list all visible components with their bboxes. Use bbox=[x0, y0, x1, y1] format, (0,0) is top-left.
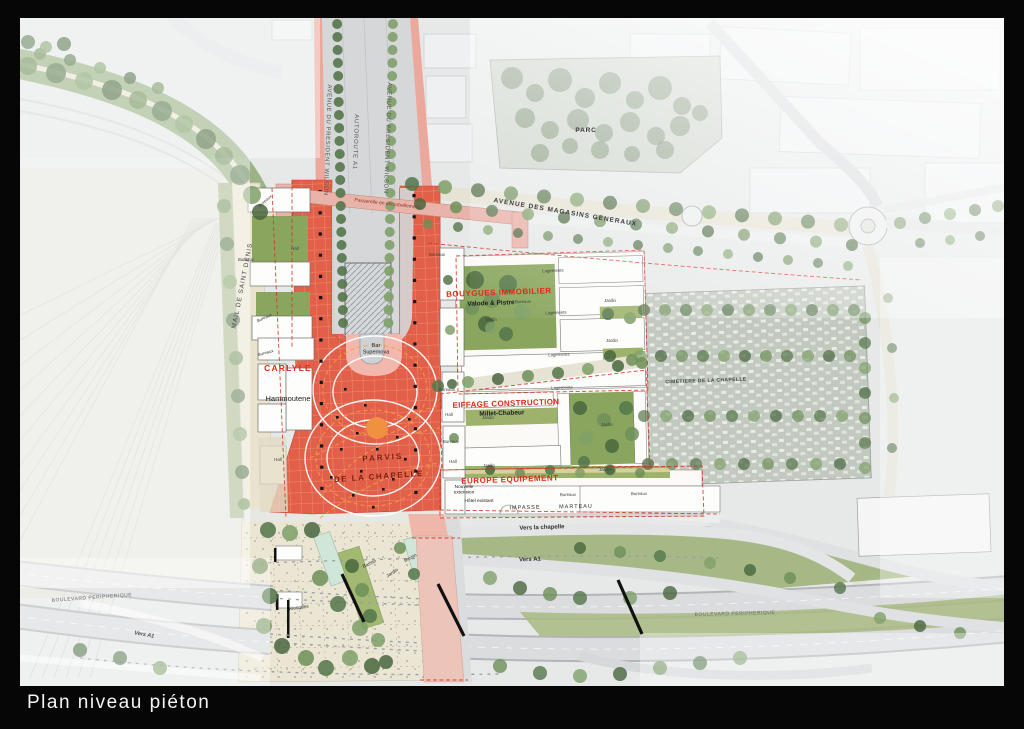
tree bbox=[304, 522, 320, 538]
tree bbox=[388, 45, 398, 55]
tree bbox=[384, 266, 394, 276]
label-parc: PARC bbox=[575, 127, 596, 134]
tree bbox=[332, 19, 342, 29]
tree bbox=[405, 177, 419, 191]
unit-label-jardin: Jardin bbox=[599, 467, 611, 472]
tree bbox=[438, 180, 452, 194]
tree bbox=[445, 325, 455, 335]
tree bbox=[385, 214, 395, 224]
tree bbox=[260, 522, 276, 538]
tree bbox=[660, 410, 672, 422]
tree bbox=[642, 458, 654, 470]
tree bbox=[914, 620, 926, 632]
tree bbox=[522, 370, 534, 382]
label-vers-a1-mid: Vers A1 bbox=[519, 557, 542, 564]
tree bbox=[384, 305, 394, 315]
tree bbox=[282, 525, 298, 541]
tree bbox=[336, 227, 346, 237]
tree bbox=[625, 427, 639, 441]
tree bbox=[334, 110, 344, 120]
tree bbox=[748, 410, 760, 422]
label-line: Bar bbox=[372, 343, 381, 349]
tree bbox=[836, 410, 848, 422]
unit-label-hall: Hall bbox=[291, 246, 298, 251]
tree bbox=[738, 458, 750, 470]
tree bbox=[834, 458, 846, 470]
unit-label-bureaux: Bureaux bbox=[439, 387, 456, 392]
tree bbox=[355, 583, 369, 597]
unit-label-bureaux: Bureaux bbox=[443, 439, 460, 444]
tree bbox=[697, 350, 709, 362]
tree bbox=[612, 360, 624, 372]
unit-label-hall: Hall bbox=[449, 459, 456, 464]
tree bbox=[379, 655, 393, 669]
tree bbox=[859, 337, 871, 349]
tree bbox=[513, 581, 527, 595]
tree bbox=[682, 410, 694, 422]
unit-label-hall: Hall bbox=[445, 412, 452, 417]
label-hotel-existant: Hôtel existant bbox=[464, 498, 494, 504]
tree bbox=[334, 97, 344, 107]
tree bbox=[814, 410, 826, 422]
tree bbox=[337, 253, 347, 263]
tree bbox=[666, 458, 678, 470]
tree bbox=[636, 357, 648, 369]
poster-frame: AVENUE DU PRESIDENT WILSONAUTOROUTE A1AV… bbox=[0, 0, 1024, 729]
tree bbox=[333, 58, 343, 68]
unit-label-bureaux: Bureaux bbox=[515, 299, 532, 305]
tree bbox=[638, 410, 650, 422]
tree bbox=[543, 587, 557, 601]
tree bbox=[335, 149, 345, 159]
tree bbox=[844, 350, 856, 362]
tree bbox=[704, 557, 716, 569]
tree bbox=[823, 350, 835, 362]
tree bbox=[335, 162, 345, 172]
tree bbox=[834, 582, 846, 594]
label-nouvelle-extension: Nouvelleextension bbox=[454, 484, 475, 496]
tree bbox=[336, 214, 346, 224]
tree bbox=[744, 564, 756, 576]
tree bbox=[614, 546, 626, 558]
tree bbox=[338, 318, 348, 328]
tree bbox=[333, 71, 343, 81]
tree bbox=[714, 458, 726, 470]
unit-label-jardin: Jardin bbox=[482, 415, 494, 420]
tree bbox=[337, 240, 347, 250]
tree bbox=[613, 667, 627, 681]
tree bbox=[492, 373, 504, 385]
tree bbox=[337, 266, 347, 276]
tree bbox=[578, 456, 590, 468]
tree bbox=[453, 222, 463, 232]
tree bbox=[462, 376, 474, 388]
tree bbox=[573, 669, 587, 683]
tree bbox=[342, 650, 358, 666]
tree bbox=[333, 84, 343, 94]
tree bbox=[792, 410, 804, 422]
pink-route bbox=[408, 514, 448, 536]
tree bbox=[786, 458, 798, 470]
tree bbox=[859, 362, 871, 374]
unit-label-logements: Logements bbox=[542, 268, 563, 274]
tree bbox=[388, 32, 398, 42]
tree bbox=[384, 279, 394, 289]
tree bbox=[874, 612, 886, 624]
tree bbox=[335, 175, 345, 185]
label-hammoutene: Hammoutene bbox=[265, 394, 310, 403]
tree bbox=[338, 292, 348, 302]
tree bbox=[337, 279, 347, 289]
tree bbox=[298, 650, 314, 666]
tree bbox=[655, 350, 667, 362]
tree bbox=[385, 227, 395, 237]
tree bbox=[704, 410, 716, 422]
tree bbox=[388, 19, 398, 29]
unit-label-jardin: Jardin bbox=[601, 422, 613, 427]
tree bbox=[573, 591, 587, 605]
map-canvas: AVENUE DU PRESIDENT WILSONAUTOROUTE A1AV… bbox=[20, 18, 1004, 686]
tree bbox=[770, 410, 782, 422]
label-line: Nouvelle bbox=[455, 484, 474, 490]
tree bbox=[690, 458, 702, 470]
tree bbox=[859, 412, 871, 424]
tree bbox=[485, 322, 497, 334]
tree bbox=[499, 327, 513, 341]
tree bbox=[784, 572, 796, 584]
tree bbox=[493, 659, 507, 673]
tree bbox=[318, 660, 334, 676]
tree bbox=[859, 462, 871, 474]
tree bbox=[336, 201, 346, 211]
tree bbox=[312, 570, 328, 586]
unit-label-logements: Logements bbox=[548, 352, 569, 358]
label-line: extension bbox=[454, 490, 475, 496]
tree bbox=[579, 431, 593, 445]
tree bbox=[739, 350, 751, 362]
tree bbox=[605, 439, 619, 453]
label-line: Supernova bbox=[363, 349, 391, 355]
tree bbox=[423, 219, 433, 229]
unit-label-jardin: Jardin bbox=[606, 338, 618, 343]
tree bbox=[371, 633, 385, 647]
tree bbox=[552, 367, 564, 379]
tree bbox=[859, 387, 871, 399]
unit-label-jardin: Jardin bbox=[483, 463, 495, 468]
tree bbox=[387, 58, 397, 68]
tree bbox=[533, 666, 547, 680]
tree bbox=[604, 350, 616, 362]
tree bbox=[619, 401, 633, 415]
tree bbox=[573, 401, 587, 415]
site-plan-drawing: AVENUE DU PRESIDENT WILSONAUTOROUTE A1AV… bbox=[20, 18, 1004, 686]
label-impasse: IMPASSE bbox=[509, 505, 540, 512]
tree bbox=[810, 458, 822, 470]
tree bbox=[394, 542, 406, 554]
tree bbox=[336, 188, 346, 198]
tree bbox=[450, 201, 462, 213]
tree bbox=[483, 571, 497, 585]
tree bbox=[333, 45, 343, 55]
unit-label-logements: Logements bbox=[551, 385, 572, 391]
unit-label-jardin: Jardin bbox=[485, 317, 497, 322]
tree bbox=[332, 32, 342, 42]
tree bbox=[384, 292, 394, 302]
tree bbox=[330, 596, 346, 612]
tree bbox=[654, 550, 666, 562]
tree bbox=[345, 559, 359, 573]
unit-label-jardin: Jardin bbox=[604, 298, 616, 303]
tree bbox=[334, 123, 344, 133]
unit-label-bureaux: Bureaux bbox=[560, 492, 577, 497]
tree bbox=[781, 350, 793, 362]
tree bbox=[582, 363, 594, 375]
tree bbox=[726, 410, 738, 422]
tree bbox=[385, 240, 395, 250]
unit-label-bureaux: Bureaux bbox=[429, 252, 446, 257]
label-marteau: MARTEAU bbox=[559, 504, 593, 511]
tree bbox=[663, 586, 677, 600]
tree bbox=[352, 620, 368, 636]
tree bbox=[635, 468, 645, 478]
unit-label-bureaux: Bureaux bbox=[631, 491, 648, 496]
tree bbox=[676, 350, 688, 362]
tree bbox=[760, 350, 772, 362]
unit-label-bureaux: Bureaux bbox=[238, 257, 255, 262]
tree bbox=[443, 275, 453, 285]
tree bbox=[575, 468, 585, 478]
tree bbox=[408, 568, 420, 580]
tree bbox=[718, 350, 730, 362]
tree bbox=[274, 638, 290, 654]
tree bbox=[334, 136, 344, 146]
unit-label-hall: Hall bbox=[274, 457, 281, 462]
tree bbox=[802, 350, 814, 362]
tree bbox=[338, 305, 348, 315]
label-carlyle: CARLYLE bbox=[264, 363, 312, 373]
page-title: Plan niveau piéton bbox=[27, 692, 210, 714]
unit-label-logements: Logements bbox=[545, 310, 566, 316]
tree bbox=[383, 318, 393, 328]
plaza-orange-marker bbox=[366, 417, 388, 439]
tree bbox=[384, 253, 394, 263]
tree bbox=[387, 71, 397, 81]
tree bbox=[762, 458, 774, 470]
tree bbox=[574, 542, 586, 554]
tree bbox=[364, 658, 380, 674]
tree bbox=[859, 437, 871, 449]
